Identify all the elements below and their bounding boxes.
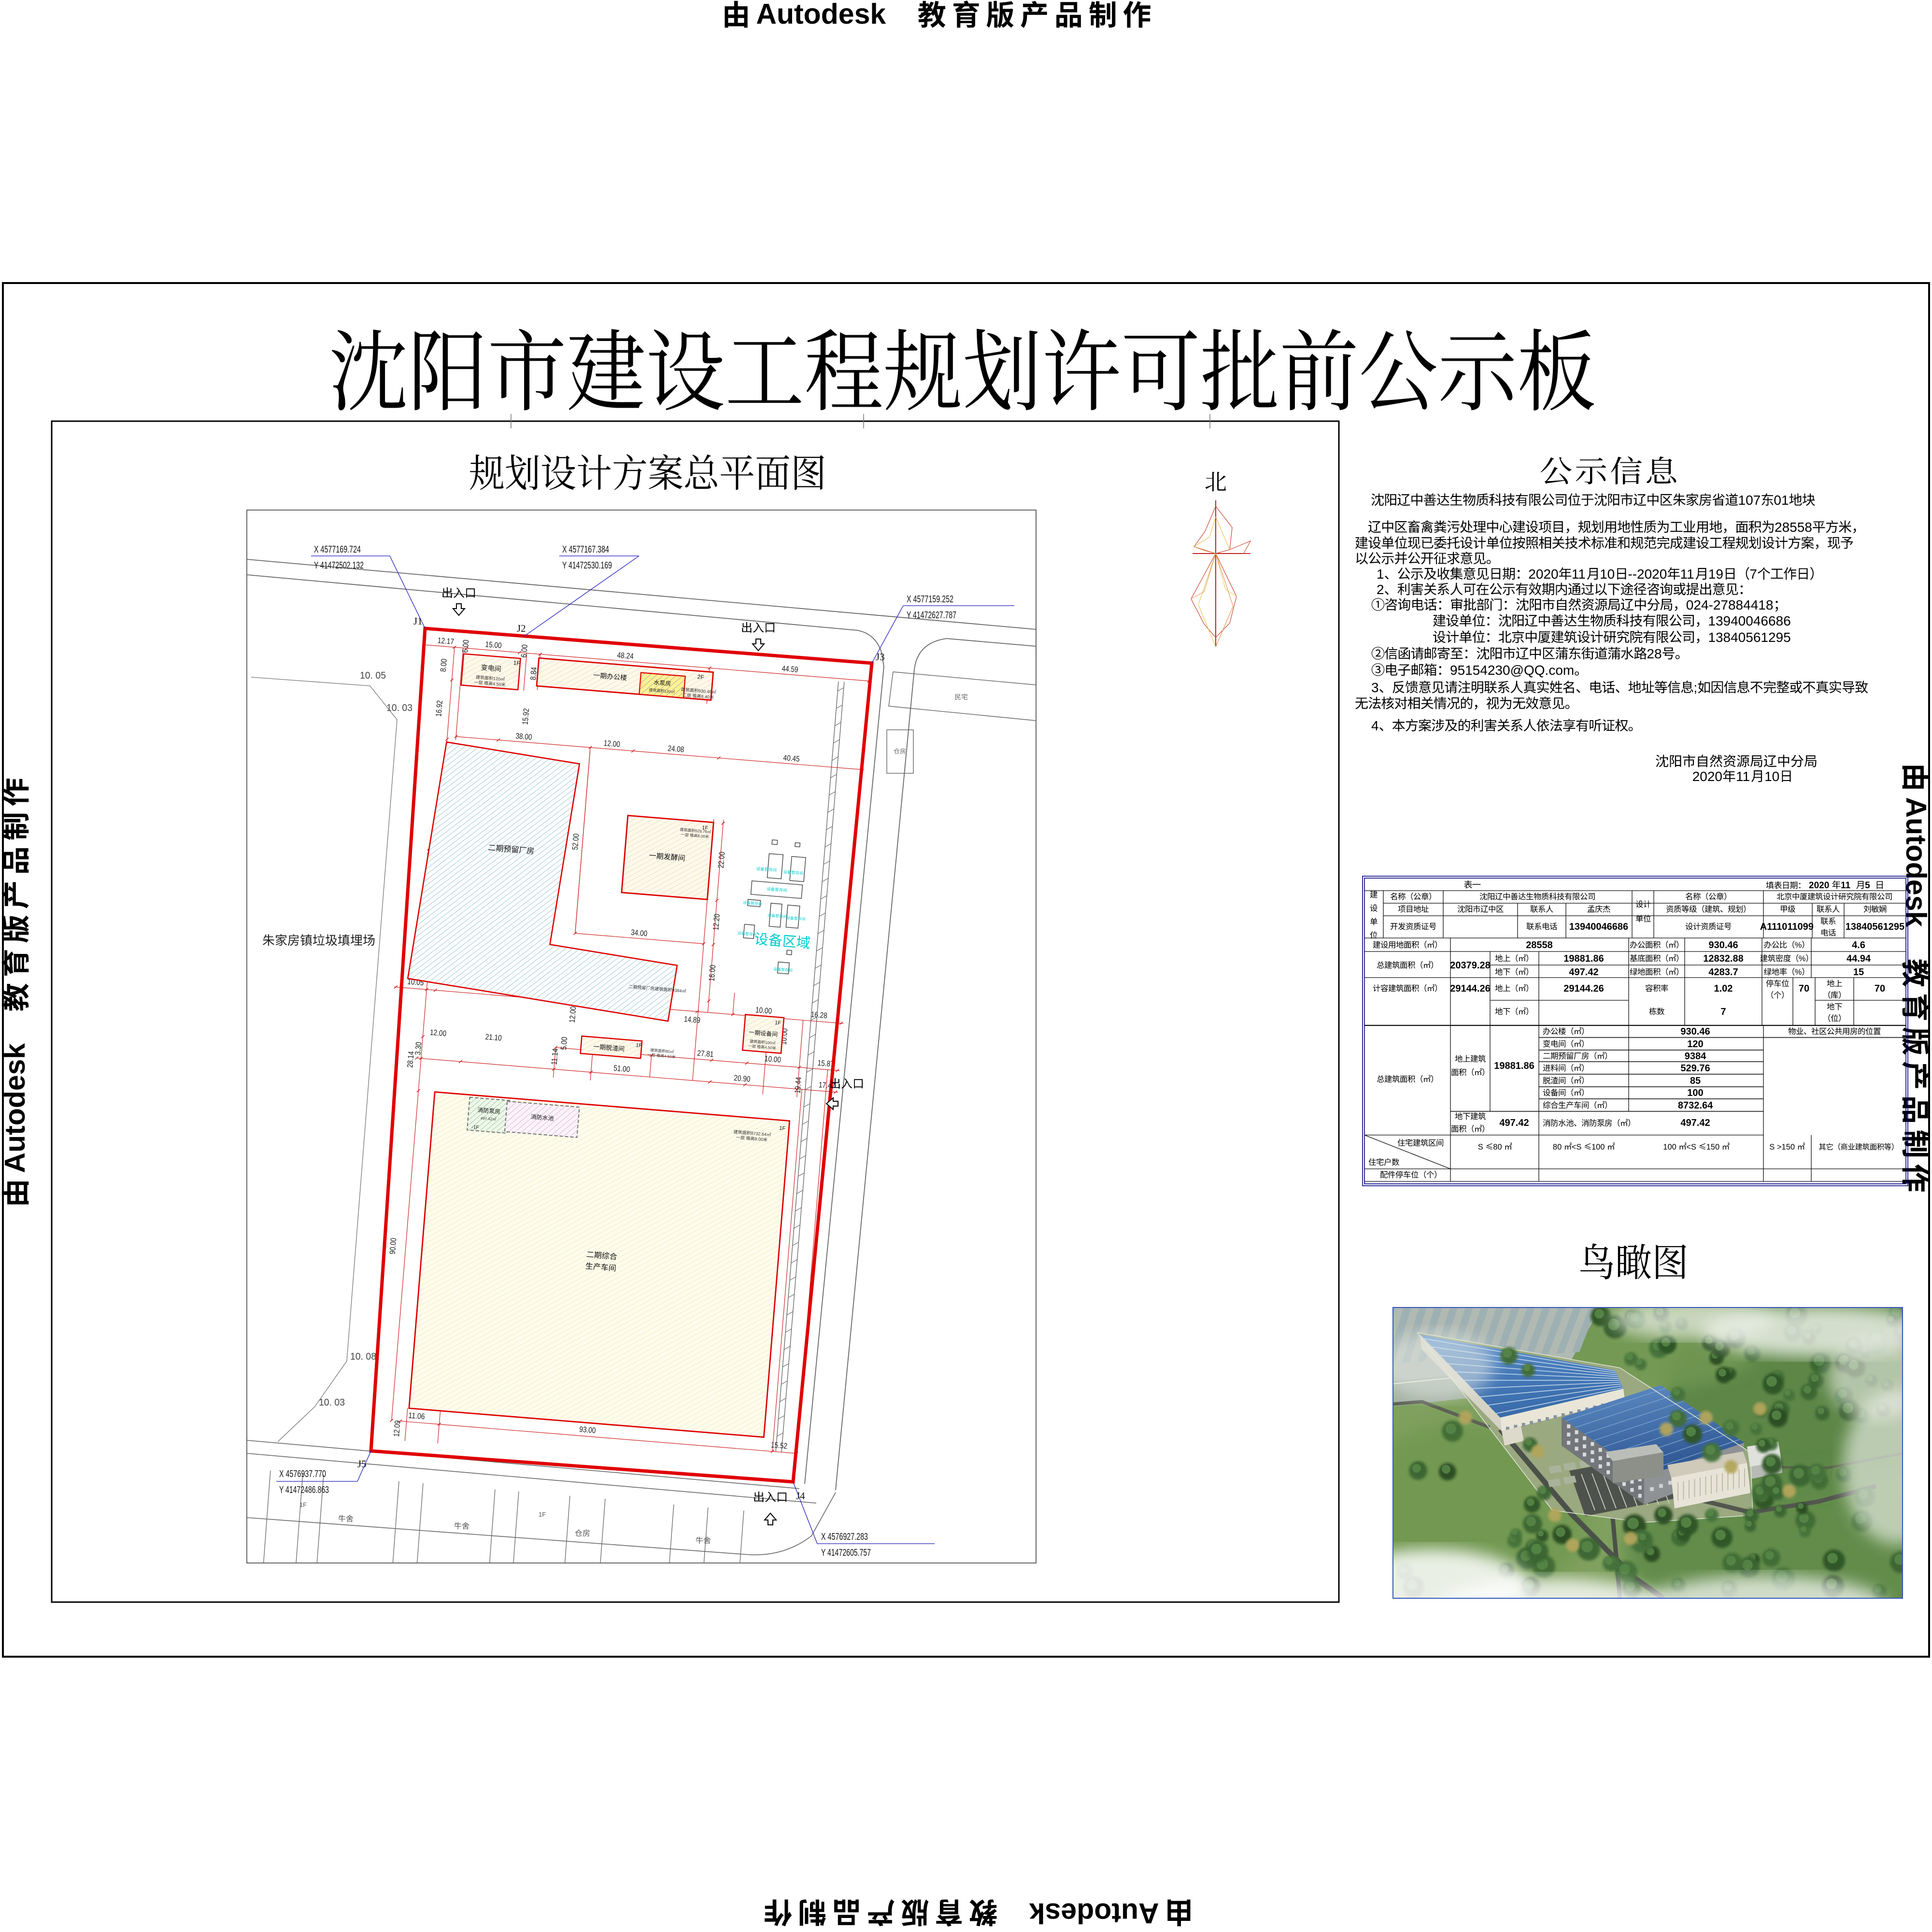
svg-text:10: 10 — [1600, 567, 1615, 582]
svg-text:Autodesk: Autodesk — [756, 0, 886, 30]
svg-text:<S: <S — [1686, 1143, 1696, 1151]
svg-text:20379.28: 20379.28 — [1450, 960, 1490, 971]
svg-text:10. 08: 10. 08 — [350, 1351, 376, 1362]
svg-text:Y 41472627.787: Y 41472627.787 — [907, 610, 956, 621]
svg-text:80: 80 — [1553, 1143, 1562, 1151]
svg-text:11: 11 — [1572, 567, 1586, 582]
svg-text:15.52: 15.52 — [770, 1441, 787, 1451]
svg-text:6.00: 6.00 — [520, 644, 529, 658]
svg-text:7: 7 — [1749, 567, 1757, 582]
svg-text:13840561295: 13840561295 — [1708, 630, 1790, 645]
svg-text:51.00: 51.00 — [613, 1064, 630, 1074]
svg-text:--2020: --2020 — [1628, 567, 1667, 582]
svg-text:28: 28 — [1647, 646, 1662, 661]
svg-text:20.90: 20.90 — [734, 1074, 751, 1084]
svg-text:80: 80 — [1493, 1143, 1502, 1151]
svg-text:5: 5 — [1865, 881, 1870, 891]
svg-text:A111011099: A111011099 — [1760, 922, 1814, 932]
svg-text:12.00: 12.00 — [603, 739, 620, 749]
svg-text:4.50: 4.50 — [765, 1045, 773, 1050]
svg-text:10. 03: 10. 03 — [386, 703, 412, 713]
svg-text:2020: 2020 — [1528, 567, 1558, 582]
svg-text:8732.64: 8732.64 — [1678, 1100, 1713, 1111]
svg-text:44.59: 44.59 — [781, 664, 798, 674]
svg-text:J2: J2 — [517, 623, 526, 634]
svg-text:12.00: 12.00 — [568, 1006, 578, 1023]
svg-text:Autodesk: Autodesk — [0, 1043, 31, 1173]
svg-text:13940046686: 13940046686 — [1708, 613, 1790, 628]
svg-text:4.50: 4.50 — [493, 682, 501, 687]
svg-text:Y 41472605.757: Y 41472605.757 — [821, 1548, 871, 1558]
svg-text:8.00: 8.00 — [754, 1136, 763, 1142]
svg-text:11.14: 11.14 — [550, 1048, 560, 1065]
svg-text:Y 41472502.132: Y 41472502.132 — [314, 560, 364, 571]
svg-text:024-27884418: 024-27884418 — [1686, 597, 1774, 612]
svg-text:100: 100 — [1663, 1143, 1676, 1151]
svg-text:150: 150 — [1706, 1143, 1720, 1151]
svg-text:Autodesk: Autodesk — [1029, 1897, 1159, 1929]
svg-text:4.50: 4.50 — [664, 1054, 672, 1059]
svg-text:12.20: 12.20 — [711, 913, 722, 930]
svg-text:52.00: 52.00 — [571, 833, 581, 850]
svg-text:4283.7: 4283.7 — [1708, 967, 1738, 978]
svg-text:%: % — [1799, 954, 1806, 963]
svg-text:J1: J1 — [413, 615, 423, 627]
svg-text:19881.86: 19881.86 — [1494, 1061, 1534, 1071]
svg-text:13940046686: 13940046686 — [1569, 922, 1628, 932]
svg-text:X 4576937.770: X 4576937.770 — [279, 1469, 326, 1479]
svg-text:9384: 9384 — [1685, 1051, 1706, 1062]
svg-text:16.28: 16.28 — [810, 1010, 827, 1020]
svg-text:X 4576927.283: X 4576927.283 — [821, 1532, 868, 1542]
svg-text:%: % — [1795, 941, 1802, 950]
svg-text:85: 85 — [1690, 1076, 1701, 1086]
svg-text:2020: 2020 — [1692, 769, 1722, 784]
svg-text:4.6: 4.6 — [1852, 940, 1865, 951]
svg-text:28558: 28558 — [1775, 520, 1812, 535]
svg-text:120: 120 — [1687, 1039, 1703, 1050]
svg-text:Y 41472486.863: Y 41472486.863 — [279, 1485, 329, 1495]
svg-text:27.81: 27.81 — [697, 1049, 714, 1059]
svg-text:-1F: -1F — [471, 1124, 479, 1130]
svg-text:16.00: 16.00 — [708, 965, 718, 981]
svg-text:120: 120 — [493, 676, 501, 682]
svg-text:21.10: 21.10 — [485, 1033, 502, 1043]
svg-text:29144.26: 29144.26 — [1563, 983, 1604, 994]
svg-text:8.40: 8.40 — [701, 694, 710, 699]
svg-text:1.02: 1.02 — [1714, 983, 1733, 994]
svg-text:2020: 2020 — [1809, 881, 1829, 891]
svg-text:4: 4 — [1371, 718, 1379, 733]
svg-text:1: 1 — [1377, 567, 1384, 582]
svg-text:1F: 1F — [775, 1020, 781, 1026]
svg-text:19881.86: 19881.86 — [1563, 953, 1604, 964]
svg-text:S: S — [1478, 1143, 1483, 1151]
svg-text:12.09: 12.09 — [392, 1420, 402, 1437]
svg-text:9384: 9384 — [672, 988, 682, 994]
svg-text:X 4577167.384: X 4577167.384 — [562, 544, 609, 555]
svg-text:8.00: 8.00 — [439, 658, 449, 672]
svg-text:29144.26: 29144.26 — [1450, 983, 1490, 994]
svg-text:19: 19 — [1708, 567, 1723, 582]
svg-text:497.42: 497.42 — [1680, 1118, 1710, 1128]
svg-text:%: % — [1795, 968, 1802, 977]
svg-text:1F: 1F — [513, 659, 520, 667]
svg-text:1F: 1F — [539, 1511, 546, 1518]
svg-text:12.00: 12.00 — [429, 1028, 446, 1038]
svg-text:Y 41472530.169: Y 41472530.169 — [562, 560, 612, 571]
svg-text:13840561295: 13840561295 — [1846, 922, 1904, 932]
svg-text:93.00: 93.00 — [579, 1425, 596, 1435]
svg-text:10. 03: 10. 03 — [319, 1397, 345, 1408]
svg-text:10.00: 10.00 — [764, 1054, 781, 1065]
svg-text:J3: J3 — [876, 651, 885, 663]
svg-text:497.42: 497.42 — [1569, 967, 1598, 978]
svg-text:70: 70 — [1799, 983, 1809, 994]
svg-text:2: 2 — [1377, 582, 1384, 597]
svg-text:7: 7 — [1720, 1007, 1726, 1017]
svg-text:40.45: 40.45 — [783, 753, 800, 764]
svg-text:S >150: S >150 — [1769, 1143, 1795, 1151]
svg-text:48.24: 48.24 — [617, 651, 634, 661]
svg-text:100: 100 — [1591, 1143, 1605, 1151]
svg-text:44.94: 44.94 — [1847, 953, 1871, 964]
svg-text:100: 100 — [1687, 1088, 1703, 1098]
svg-text:1F: 1F — [636, 1042, 642, 1049]
svg-text:6.00: 6.00 — [461, 639, 470, 653]
svg-text:11: 11 — [1841, 881, 1851, 891]
svg-text:12.17: 12.17 — [437, 636, 454, 646]
svg-text:529.76: 529.76 — [1680, 1063, 1710, 1074]
svg-text:497.42: 497.42 — [1499, 1118, 1529, 1128]
svg-text:11: 11 — [1736, 769, 1750, 784]
svg-text:120: 120 — [664, 689, 671, 694]
svg-text:10. 05: 10. 05 — [360, 670, 386, 681]
svg-text:11.06: 11.06 — [408, 1411, 425, 1421]
svg-text:15.00: 15.00 — [485, 640, 502, 650]
svg-text:16.92: 16.92 — [434, 700, 444, 717]
svg-text:2F: 2F — [697, 673, 704, 681]
svg-text:34.00: 34.00 — [631, 928, 648, 938]
svg-text:28.14: 28.14 — [406, 1051, 416, 1068]
svg-text:24.08: 24.08 — [668, 744, 684, 754]
svg-text:10: 10 — [1764, 769, 1779, 784]
svg-text:1F: 1F — [299, 1501, 307, 1508]
svg-text:19.44: 19.44 — [793, 1077, 803, 1094]
svg-text:95154230@QQ.com: 95154230@QQ.com — [1450, 663, 1574, 678]
svg-text:22.00: 22.00 — [717, 852, 727, 868]
svg-text:X 4577159.252: X 4577159.252 — [907, 594, 953, 605]
svg-text:1F: 1F — [779, 1125, 786, 1132]
svg-text:38.00: 38.00 — [515, 732, 532, 742]
svg-text:930.46: 930.46 — [1680, 1026, 1710, 1037]
svg-text:11: 11 — [1680, 567, 1694, 582]
svg-text:15.92: 15.92 — [521, 708, 531, 725]
svg-text:70: 70 — [1875, 983, 1885, 994]
svg-text:10.00: 10.00 — [755, 1006, 772, 1016]
svg-text:90.00: 90.00 — [388, 1237, 398, 1254]
svg-text:107: 107 — [1738, 493, 1761, 508]
svg-text:5.00: 5.00 — [559, 1037, 569, 1051]
svg-text:12832.88: 12832.88 — [1703, 953, 1743, 964]
svg-text:01: 01 — [1774, 493, 1789, 508]
svg-text:1F: 1F — [702, 825, 709, 831]
svg-text:85: 85 — [666, 1049, 670, 1054]
svg-text:14.89: 14.89 — [683, 1015, 700, 1025]
svg-text:<S: <S — [1572, 1143, 1582, 1151]
svg-text:28558: 28558 — [1526, 940, 1553, 951]
svg-text:8.00: 8.00 — [697, 834, 706, 838]
svg-text:;: ; — [1693, 680, 1697, 695]
svg-text:Autodesk: Autodesk — [1900, 797, 1932, 927]
svg-text:X 4577169.724: X 4577169.724 — [314, 544, 361, 555]
svg-text:930.46: 930.46 — [1708, 940, 1738, 951]
svg-text:100: 100 — [765, 1040, 772, 1045]
svg-text:J4: J4 — [796, 1490, 805, 1502]
svg-text:15: 15 — [1853, 967, 1864, 978]
svg-text:3: 3 — [1371, 680, 1379, 695]
